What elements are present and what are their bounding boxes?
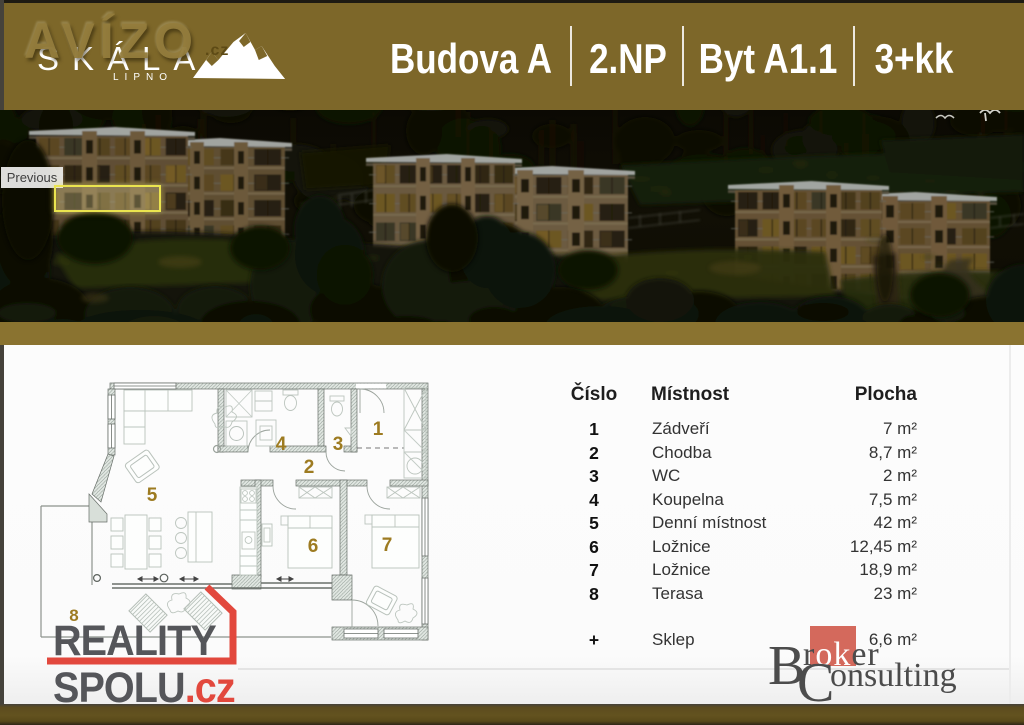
svg-text:onsulting: onsulting [830, 657, 957, 694]
